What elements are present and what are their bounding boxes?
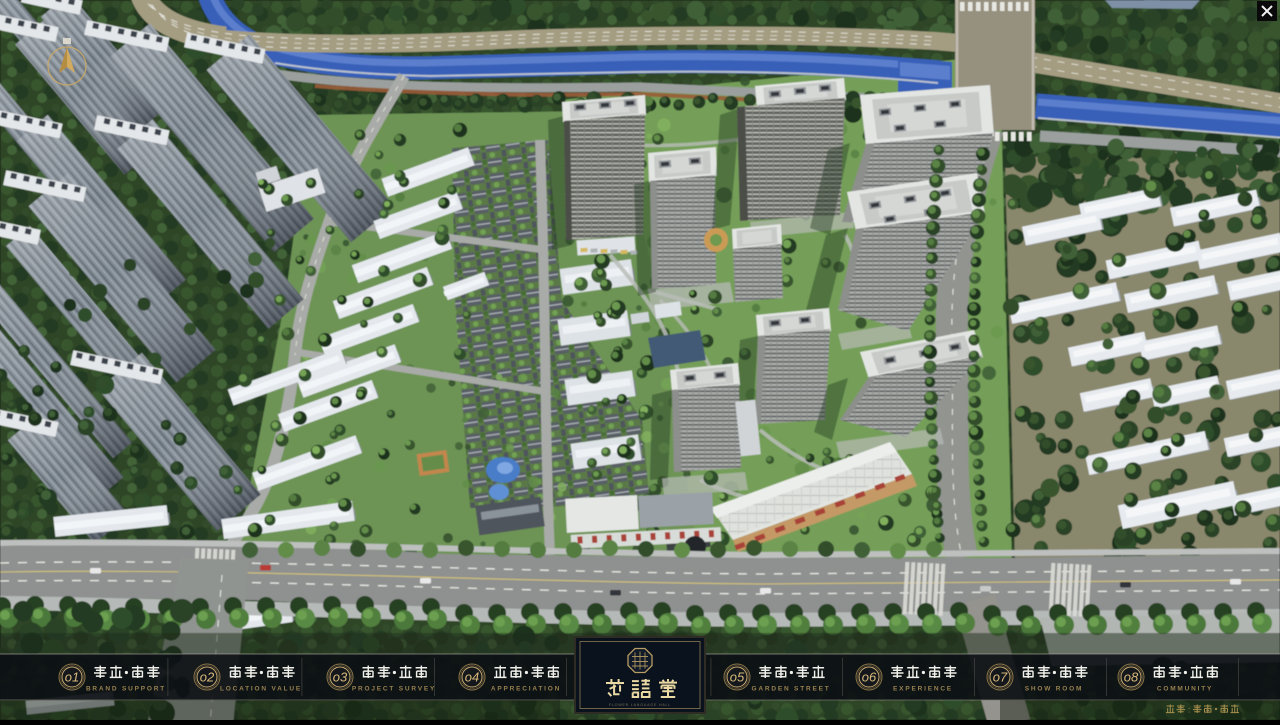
svg-text:APPRECIATION: APPRECIATION (491, 686, 561, 693)
svg-text:o5: o5 (730, 670, 745, 685)
svg-text:o7: o7 (993, 670, 1008, 685)
svg-text:PROJECT SURVEY: PROJECT SURVEY (352, 686, 436, 693)
svg-text:BRAND SUPPORT: BRAND SUPPORT (86, 686, 166, 693)
svg-text:o8: o8 (1124, 670, 1139, 685)
svg-text:o6: o6 (862, 670, 877, 685)
svg-text:GARDEN STREET: GARDEN STREET (751, 686, 830, 693)
svg-text:o2: o2 (200, 670, 215, 685)
svg-text:SHOW ROOM: SHOW ROOM (1025, 686, 1083, 693)
svg-text::: : (1188, 706, 1190, 715)
svg-text:o1: o1 (65, 670, 79, 685)
svg-text:o3: o3 (333, 670, 348, 685)
svg-text:FLOWER LANGUAGE HALL: FLOWER LANGUAGE HALL (609, 703, 671, 707)
svg-text:LOCATION VALUE: LOCATION VALUE (220, 686, 302, 693)
svg-text:COMMUNITY: COMMUNITY (1157, 686, 1213, 693)
svg-text:EXPERIENCE: EXPERIENCE (893, 686, 953, 693)
svg-text:o4: o4 (465, 670, 479, 685)
